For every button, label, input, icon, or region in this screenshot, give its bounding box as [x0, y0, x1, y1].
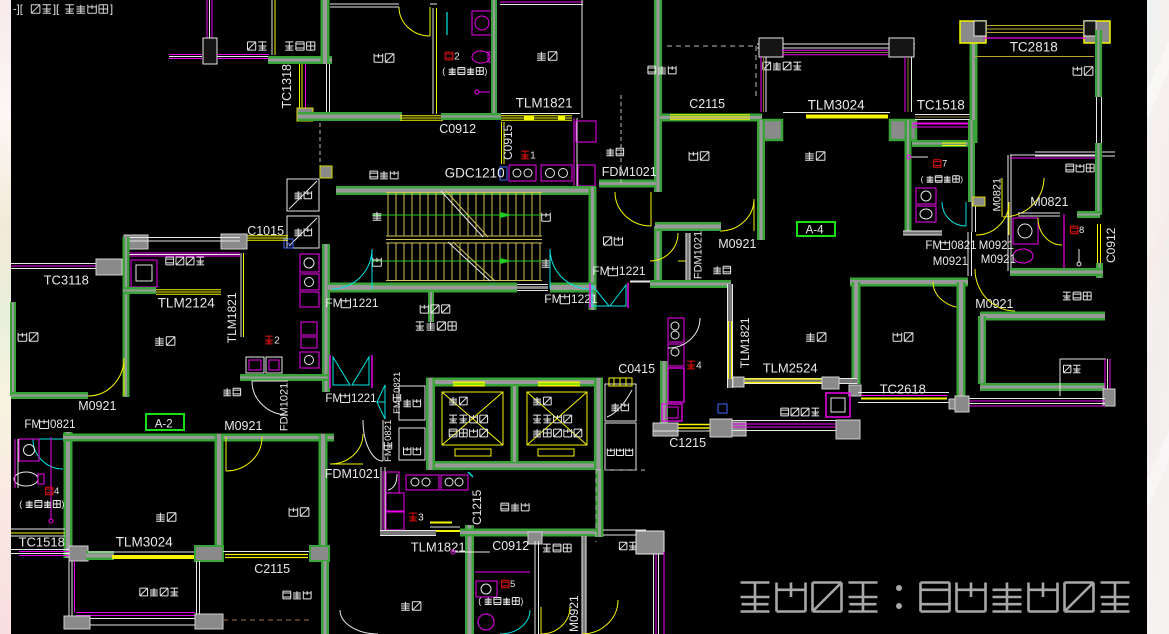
svg-text:TLM2124: TLM2124	[158, 296, 216, 311]
svg-text:M0921: M0921	[933, 256, 968, 268]
svg-text:FDM1021: FDM1021	[325, 467, 380, 481]
svg-text:): )	[960, 174, 963, 184]
svg-text:8: 8	[1079, 225, 1084, 236]
svg-text:M0921: M0921	[224, 419, 262, 433]
svg-text:GDC1210: GDC1210	[445, 166, 505, 181]
svg-text:TLM1821: TLM1821	[516, 96, 573, 111]
svg-text:1221: 1221	[619, 264, 646, 278]
svg-text:TC1318: TC1318	[280, 64, 294, 109]
svg-text:2: 2	[274, 335, 280, 346]
svg-text:TLM2524: TLM2524	[763, 360, 818, 375]
svg-text:FM: FM	[383, 448, 394, 462]
svg-text:FDM1021: FDM1021	[602, 165, 657, 179]
svg-text:]: ]	[110, 4, 113, 16]
svg-text:FM: FM	[24, 419, 41, 431]
svg-text:FM: FM	[544, 292, 561, 306]
svg-text:M0921: M0921	[975, 297, 1013, 311]
svg-text:(: (	[921, 174, 924, 184]
svg-text:TC3118: TC3118	[44, 272, 89, 287]
svg-text:(: (	[19, 499, 22, 509]
svg-text:C0912: C0912	[439, 122, 476, 136]
svg-text:C0915: C0915	[501, 124, 515, 160]
svg-text:FDM1021: FDM1021	[279, 383, 291, 431]
svg-text:1221: 1221	[352, 296, 379, 310]
svg-text:(: (	[478, 596, 481, 606]
svg-text:1221: 1221	[571, 292, 598, 306]
svg-text:C0415: C0415	[618, 362, 655, 376]
svg-text:1: 1	[530, 150, 536, 161]
svg-text:C0912: C0912	[1104, 227, 1118, 263]
svg-text:FDM1021: FDM1021	[693, 231, 705, 279]
svg-text:C1215: C1215	[669, 436, 706, 450]
svg-text:TC1518: TC1518	[19, 534, 65, 549]
svg-text:TLM3024: TLM3024	[116, 535, 174, 550]
svg-text:TC1518: TC1518	[917, 98, 965, 113]
svg-text:(: (	[442, 66, 445, 76]
svg-text:][: ][	[53, 4, 59, 16]
svg-text:-][: -][	[13, 4, 23, 16]
svg-text:4: 4	[54, 486, 59, 497]
svg-text:FM: FM	[325, 296, 342, 310]
svg-text:2: 2	[454, 51, 460, 62]
svg-text:FM: FM	[592, 264, 609, 278]
svg-text:FM: FM	[325, 393, 342, 405]
svg-text:C2115: C2115	[689, 97, 725, 111]
svg-text:): )	[520, 596, 523, 606]
svg-text:TLM1821: TLM1821	[738, 317, 752, 368]
svg-text:M0921: M0921	[981, 254, 1016, 266]
svg-text:C2115: C2115	[254, 562, 290, 576]
svg-text:7: 7	[942, 159, 947, 170]
svg-text:TC2618: TC2618	[880, 381, 926, 396]
svg-text:FM: FM	[925, 240, 942, 252]
svg-text:): )	[484, 66, 487, 76]
svg-text:C1215: C1215	[470, 489, 484, 525]
svg-text:0821: 0821	[951, 240, 977, 252]
svg-text:0821: 0821	[392, 372, 403, 393]
svg-text:5: 5	[510, 579, 515, 590]
svg-text:M0921: M0921	[78, 399, 116, 413]
svg-text:A-2: A-2	[155, 418, 173, 430]
svg-text:0821: 0821	[383, 420, 394, 441]
svg-text:): )	[61, 499, 64, 509]
svg-text:1221: 1221	[351, 393, 377, 405]
svg-text:TC2818: TC2818	[1010, 40, 1058, 55]
svg-text:C0912: C0912	[492, 539, 529, 553]
svg-text:M0921: M0921	[979, 240, 1014, 252]
svg-text:TLM3024: TLM3024	[808, 98, 866, 113]
svg-text:A-4: A-4	[806, 224, 825, 236]
svg-text:TLM1821: TLM1821	[225, 292, 239, 343]
svg-text:M0921: M0921	[718, 237, 756, 251]
svg-text:M0821: M0821	[1030, 195, 1068, 209]
svg-text:3: 3	[418, 512, 424, 523]
svg-text:0821: 0821	[50, 419, 76, 431]
svg-text:4: 4	[696, 360, 702, 371]
svg-text:FM: FM	[392, 400, 403, 414]
